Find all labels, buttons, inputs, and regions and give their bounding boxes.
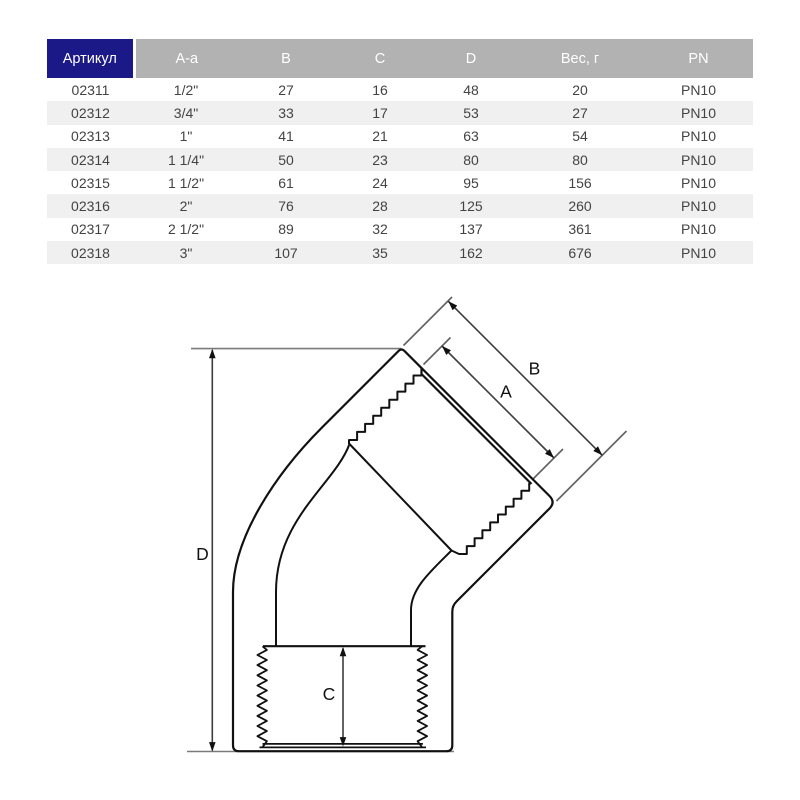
svg-text:A: A	[500, 382, 512, 402]
svg-text:D: D	[196, 544, 209, 564]
svg-text:B: B	[529, 359, 541, 379]
svg-text:C: C	[323, 684, 336, 704]
